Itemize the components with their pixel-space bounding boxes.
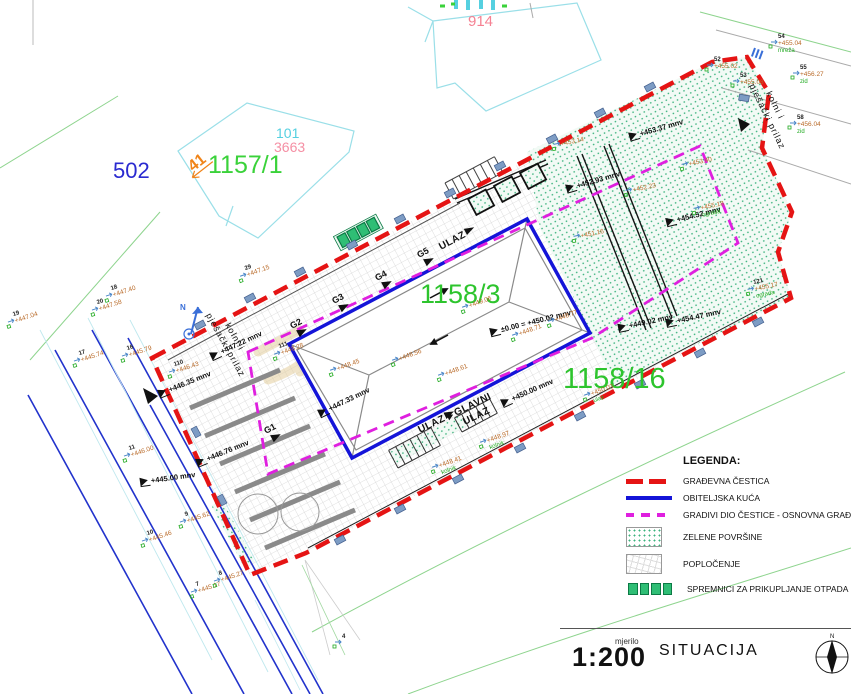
legend-label: OBITELJSKA KUĆA (683, 493, 760, 503)
svg-text:+456.04: +456.04 (797, 121, 821, 128)
svg-text:mreža: mreža (778, 48, 795, 54)
legend-row-house: OBITELJSKA KUĆA (626, 493, 851, 503)
survey-point: 29 +447.15 (235, 258, 271, 282)
compass-icon: N (810, 631, 851, 677)
parcel-label-1158-3: 1158/3 (420, 279, 501, 309)
legend-swatch-boundary (626, 479, 672, 484)
survey-point: 19 +447.04 (4, 305, 40, 329)
drawing-title: SITUACIJA (659, 642, 759, 660)
title-block: mjerilo 1:200 SITUACIJA N (560, 628, 851, 694)
svg-text:+445.27: +445.27 (220, 570, 245, 584)
parcel-label-914: 914 (468, 13, 493, 30)
survey-point: 54 +455.04 mreža (769, 34, 802, 54)
legend-swatch-paving (626, 554, 672, 574)
svg-text:zid: zid (800, 79, 808, 85)
svg-text:+445.17: +445.17 (197, 581, 222, 595)
legend-row-bins: SPREMNICI ZA PRIKUPLJANJE OTPADA (626, 581, 851, 597)
boundary-mark (444, 188, 456, 198)
legend-label: POPLOČENJE (683, 559, 740, 569)
site-plan-canvas: N 502 1157/1 41 101 3663 914 1158/3 1158… (0, 0, 851, 694)
boundary-mark (739, 94, 750, 102)
boundary-mark (244, 293, 256, 303)
svg-text:+456.27: +456.27 (800, 71, 824, 78)
legend-label: SPREMNICI ZA PRIKUPLJANJE OTPADA (687, 584, 848, 594)
svg-text:4: 4 (342, 634, 346, 640)
svg-text:+445.00 mnv: +445.00 mnv (150, 470, 196, 485)
legend-label: ZELENE POVRŠINE (683, 532, 762, 542)
svg-text:+455.04: +455.04 (778, 40, 802, 47)
legend-label: GRADIVI DIO ČESTICE - OSNOVNA GRAĐEVINA (683, 510, 851, 520)
parcel-914-outline (433, 3, 601, 111)
scale-value: 1:200 (572, 642, 646, 673)
parcel-label-41: 41 (185, 151, 210, 175)
survey-point: 17 +445.74 (70, 344, 106, 368)
legend-row-paving: POPLOČENJE (626, 554, 851, 574)
legend-row-boundary: GRAĐEVNA ČESTICA (626, 476, 851, 486)
survey-point: 11 +446.00 (120, 439, 156, 463)
svg-text:+455.02: +455.02 (714, 63, 738, 70)
legend-swatch-waste-bins (626, 581, 676, 597)
culvert-hatch (752, 48, 763, 59)
legend-swatch-buildable (626, 513, 672, 517)
boundary-mark (574, 411, 586, 421)
elevation-label: +445.00 mnv (139, 470, 196, 487)
parcel-label-1158-16: 1158/16 (563, 363, 666, 395)
parcel-label-1157-1: 1157/1 (208, 151, 283, 179)
parcel-label-3663: 3663 (274, 139, 305, 155)
boundary-mark (452, 474, 464, 484)
survey-point: 16 +445.79 (118, 339, 154, 363)
svg-text:+455.08: +455.08 (740, 79, 764, 86)
legend-label: GRAĐEVNA ČESTICA (683, 476, 769, 486)
legend-row-buildable: GRADIVI DIO ČESTICE - OSNOVNA GRAĐEVINA (626, 510, 851, 520)
legend-swatch-house (626, 496, 672, 500)
survey-point: 55 +456.27 zid (791, 65, 824, 85)
compass-north-letter: N (830, 634, 834, 640)
survey-point: 4 (333, 634, 346, 648)
legend: LEGENDA: GRAĐEVNA ČESTICA OBITELJSKA KUĆ… (626, 455, 851, 604)
survey-point: 58 +456.04 zid (788, 115, 821, 135)
legend-row-green: ZELENE POVRŠINE (626, 527, 851, 547)
boundary-mark (514, 443, 526, 453)
legend-swatch-green-areas (626, 527, 672, 547)
svg-text:zid: zid (797, 129, 805, 135)
parcel-label-502: 502 (113, 158, 150, 183)
legend-title: LEGENDA: (683, 455, 851, 467)
north-letter: N (180, 303, 186, 312)
